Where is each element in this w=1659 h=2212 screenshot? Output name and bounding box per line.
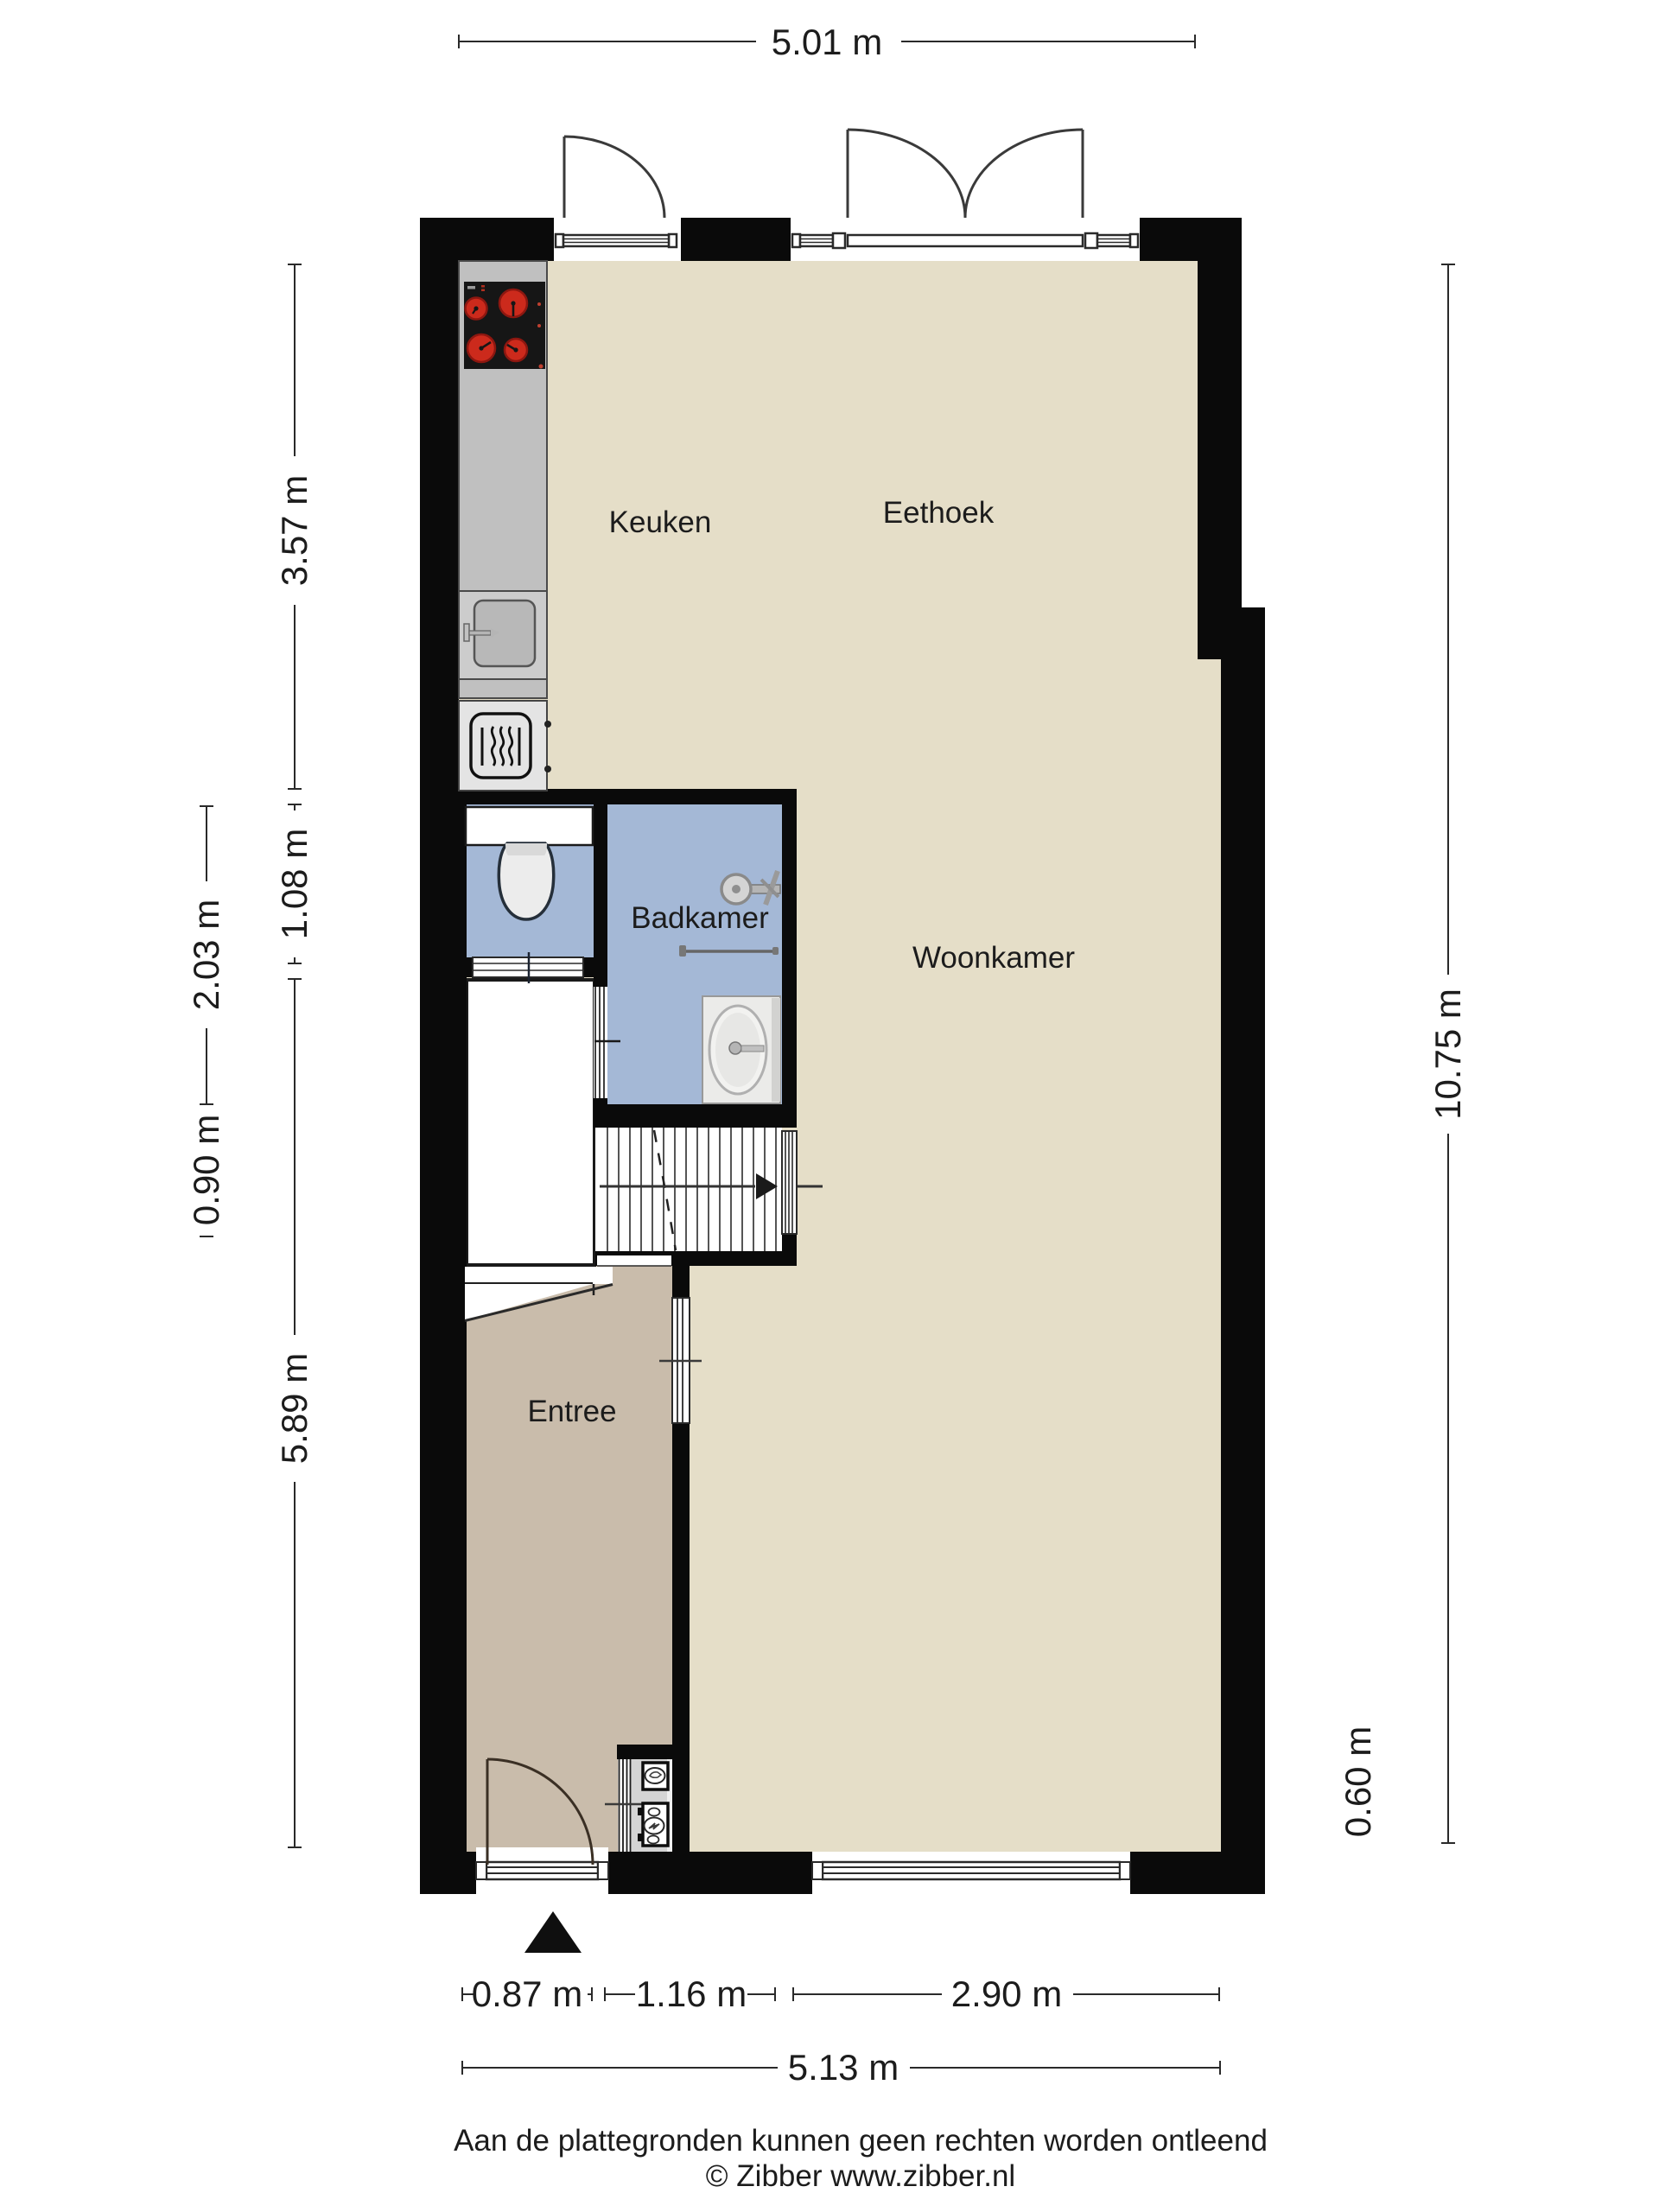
svg-text:3.57 m: 3.57 m xyxy=(274,475,315,586)
svg-text:5.13 m: 5.13 m xyxy=(788,2047,899,2088)
svg-text:1.08 m: 1.08 m xyxy=(274,829,315,939)
svg-text:Keuken: Keuken xyxy=(609,505,712,539)
svg-text:© Zibber www.zibber.nl: © Zibber www.zibber.nl xyxy=(706,2159,1015,2193)
svg-text:2.90 m: 2.90 m xyxy=(951,1974,1062,2014)
svg-text:5.01 m: 5.01 m xyxy=(772,22,882,62)
svg-text:Aan de plattegronden kunnen ge: Aan de plattegronden kunnen geen rechten… xyxy=(454,2124,1268,2158)
svg-text:0.87 m: 0.87 m xyxy=(472,1974,582,2014)
svg-text:1.16 m: 1.16 m xyxy=(636,1974,747,2014)
svg-text:0.60 m: 0.60 m xyxy=(1338,1726,1378,1837)
svg-text:Eethoek: Eethoek xyxy=(883,496,995,530)
svg-text:2.03 m: 2.03 m xyxy=(186,899,226,1010)
svg-text:5.89 m: 5.89 m xyxy=(274,1353,315,1464)
svg-text:Entree: Entree xyxy=(527,1395,616,1428)
svg-text:0.90 m: 0.90 m xyxy=(186,1115,226,1225)
svg-text:Woonkamer: Woonkamer xyxy=(912,941,1075,975)
svg-text:10.75 m: 10.75 m xyxy=(1427,988,1468,1120)
svg-text:Badkamer: Badkamer xyxy=(631,901,769,935)
